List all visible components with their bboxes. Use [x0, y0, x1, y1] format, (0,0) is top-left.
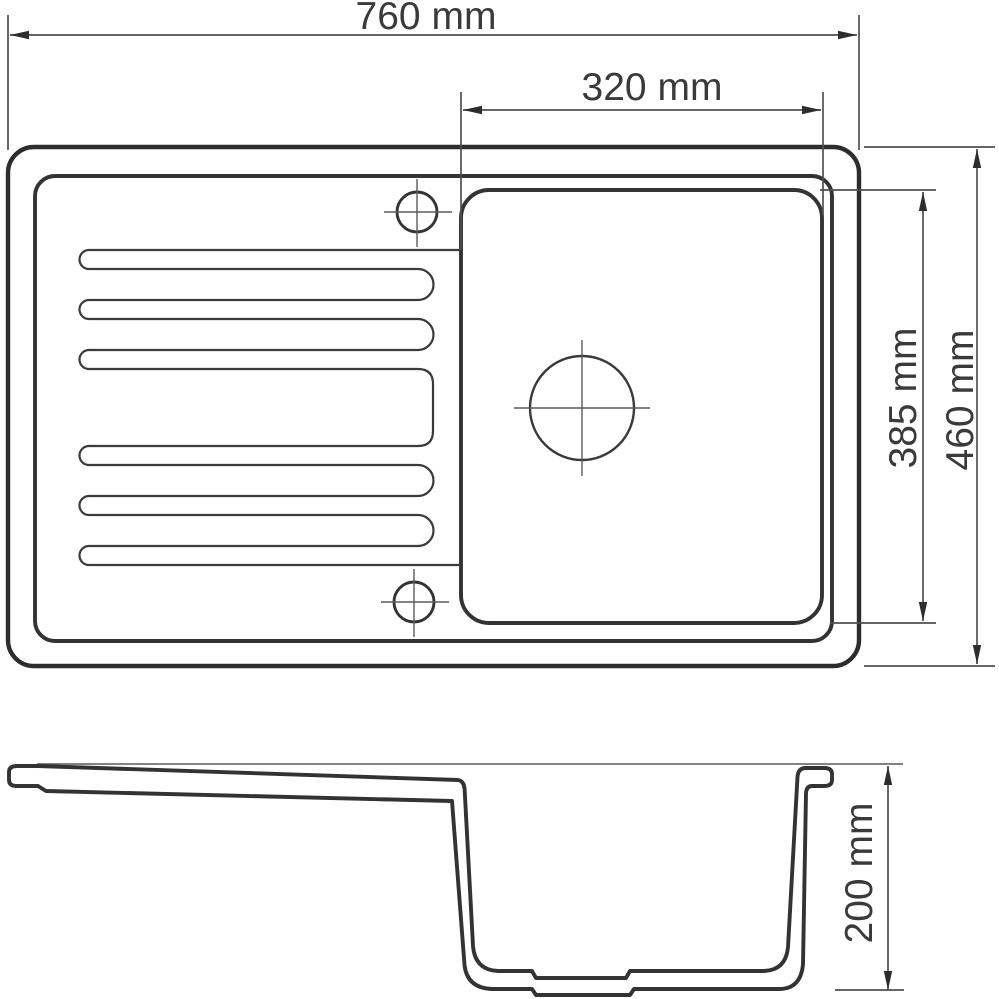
- dim-320-arrow-right: [802, 106, 821, 114]
- dim-200-arrow-top: [884, 766, 892, 785]
- dim-bowl-height: 200 mm: [835, 766, 904, 990]
- dim-200-arrow-bottom: [884, 971, 892, 990]
- dim-200-label: 200 mm: [838, 803, 881, 944]
- dim-320-label: 320 mm: [582, 66, 723, 109]
- dim-460-arrow-top: [973, 149, 981, 168]
- dim-385-label: 385 mm: [882, 328, 925, 469]
- side-view: 200 mm: [9, 764, 904, 995]
- dim-460-label: 460 mm: [939, 330, 982, 471]
- dim-385-arrow-bottom: [919, 602, 927, 621]
- dim-385-arrow-top: [919, 192, 927, 211]
- dim-overall-width: 760 mm: [8, 0, 859, 150]
- dim-bowl-width: 320 mm: [461, 66, 823, 250]
- dim-bowl-depth: 385 mm: [820, 190, 936, 623]
- dim-760-arrow-right: [838, 31, 857, 39]
- drain-hole: [514, 340, 650, 476]
- bowl-outline: [461, 190, 822, 623]
- side-profile-outline: [9, 766, 832, 995]
- top-view: 760 mm 320 mm 385 mm 460 mm: [8, 0, 995, 666]
- dim-460-arrow-bottom: [973, 645, 981, 664]
- dim-320-arrow-left: [463, 106, 482, 114]
- drainboard-grooves: [80, 250, 462, 565]
- dim-760-label: 760 mm: [356, 0, 497, 38]
- sink-dimension-drawing: 760 mm 320 mm 385 mm 460 mm: [0, 0, 999, 999]
- faucet-hole-bottom: [381, 569, 449, 637]
- dim-760-arrow-left: [10, 31, 29, 39]
- faucet-hole-top: [384, 179, 452, 247]
